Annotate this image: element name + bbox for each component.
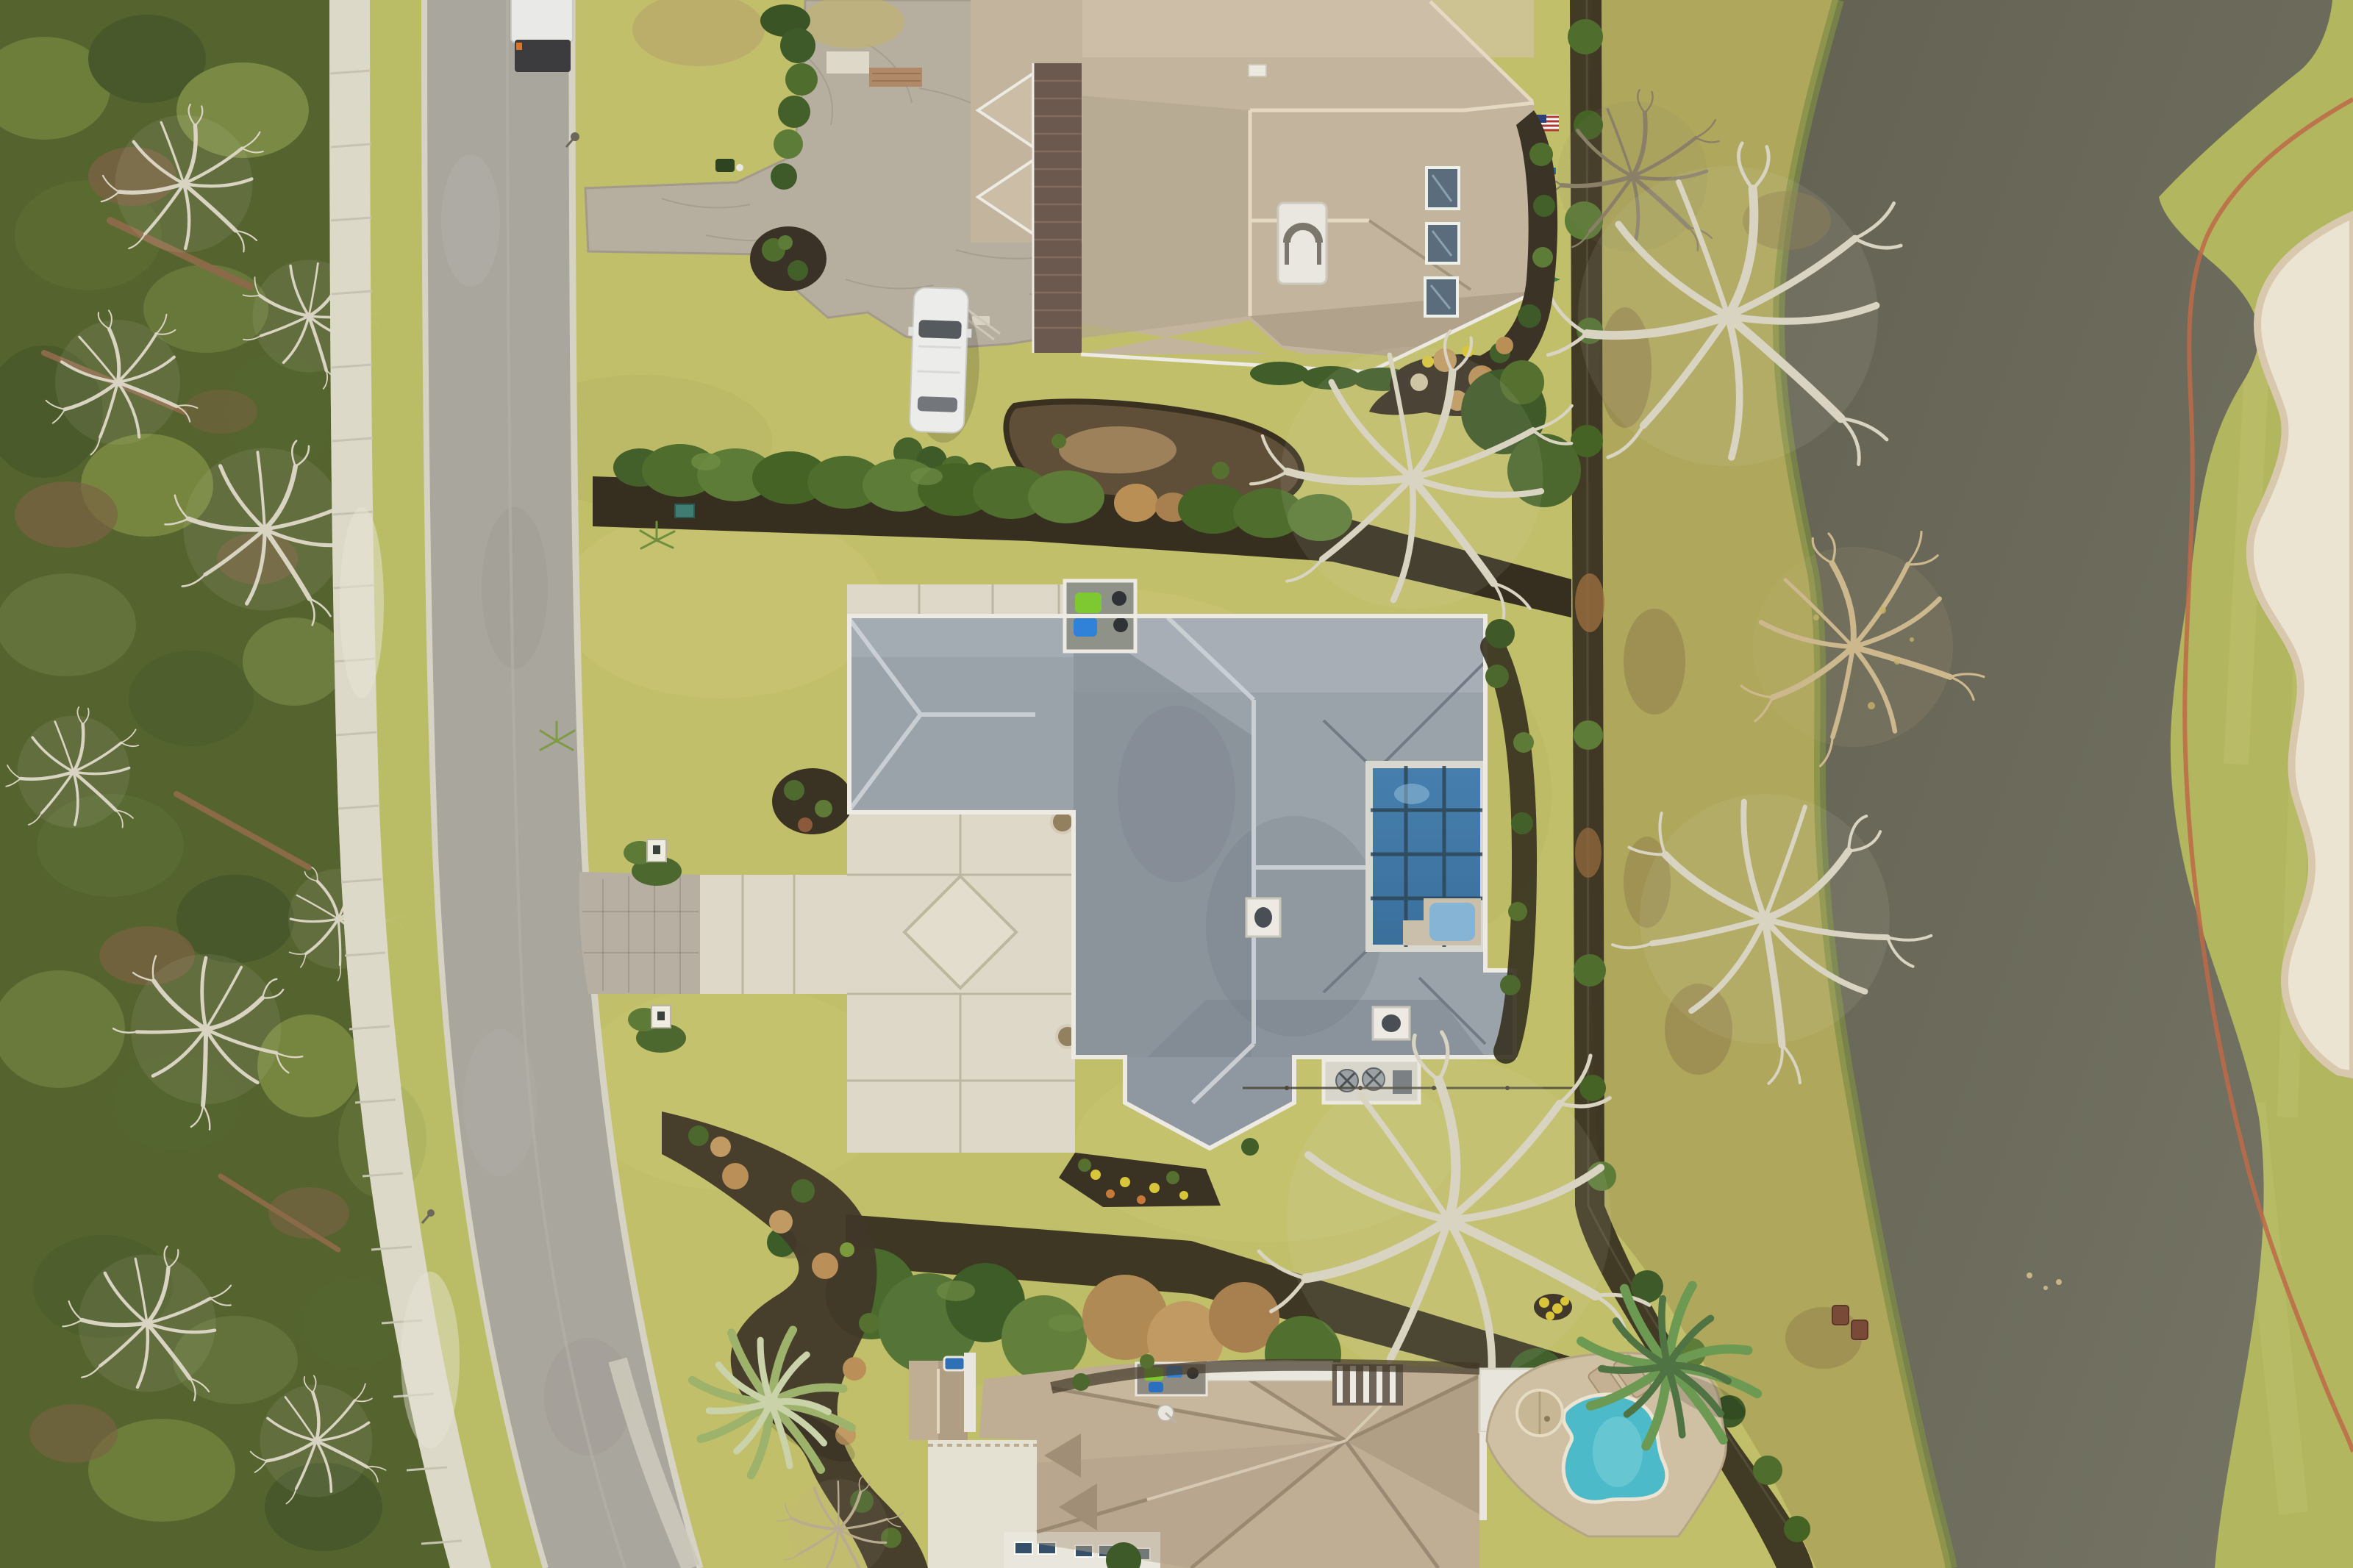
grill [1112, 591, 1126, 606]
driveway-paver-apron [579, 872, 700, 994]
east-fascia [1479, 1432, 1487, 1520]
sidewalk-bright-patch [401, 1272, 460, 1448]
roof-cupola-box [1246, 898, 1280, 937]
screened-pool-enclosure [1369, 765, 1484, 948]
grill [1113, 617, 1128, 632]
aerial-photo [0, 0, 2353, 1568]
mulch-island [750, 226, 826, 291]
pool-shallow [1593, 1417, 1643, 1487]
house-top-roof [971, 0, 1534, 382]
courtyard-blue-chair [1074, 617, 1097, 637]
backyard-shrub [1241, 1138, 1259, 1156]
roof-vent [1249, 65, 1266, 76]
cupola [1278, 203, 1327, 284]
spa-cover [1517, 1390, 1563, 1436]
spa [1429, 903, 1475, 941]
aerial-photo-stage [0, 0, 2353, 1568]
north-bed-shrub [1140, 1354, 1154, 1369]
utility-box [675, 504, 694, 518]
yellow-flower-bed [1534, 1294, 1572, 1320]
garage-wing-shade [938, 1361, 968, 1440]
blue-spa-skylight [944, 1357, 965, 1370]
courtyard-green-chair [1075, 593, 1101, 613]
box-truck [511, 0, 573, 72]
roof-cupola-box [1373, 1007, 1410, 1039]
roof-skylights [1425, 168, 1459, 316]
north-bed-shrub [1072, 1373, 1090, 1391]
sidewalk-bright-patch [340, 507, 384, 698]
